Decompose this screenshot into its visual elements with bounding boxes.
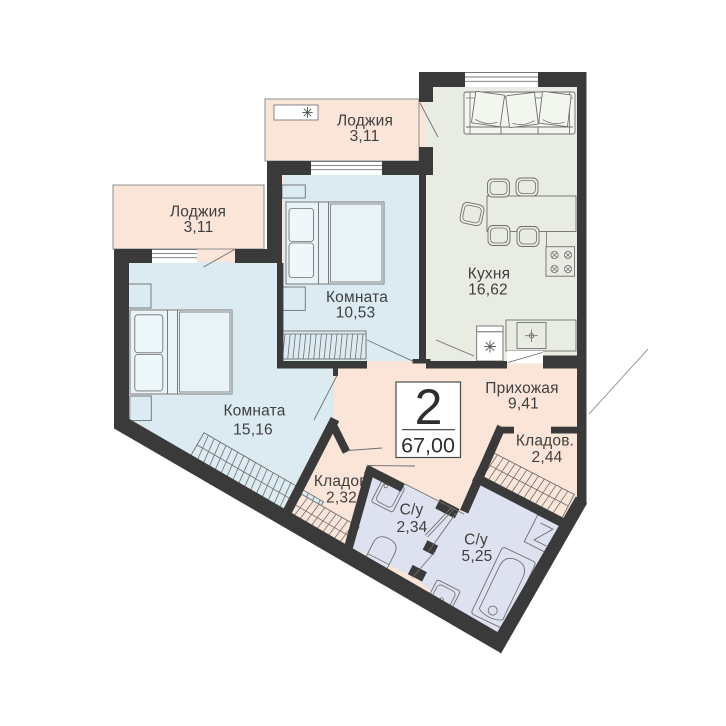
svg-text:10,53: 10,53 (336, 305, 376, 322)
svg-text:2,32: 2,32 (326, 490, 357, 507)
svg-text:С/у: С/у (400, 502, 424, 519)
svg-text:Комната: Комната (326, 289, 388, 306)
svg-text:Кладов.: Кладов. (314, 473, 372, 490)
svg-text:5,25: 5,25 (462, 548, 493, 565)
svg-text:С/у: С/у (464, 532, 488, 549)
svg-text:Кухня: Кухня (468, 266, 510, 283)
svg-text:Лоджия: Лоджия (170, 204, 226, 221)
svg-text:Кладов.: Кладов. (516, 433, 574, 450)
svg-text:2: 2 (415, 379, 443, 435)
svg-text:3,11: 3,11 (184, 219, 214, 236)
svg-text:16,62: 16,62 (468, 282, 508, 299)
svg-text:2,44: 2,44 (532, 449, 563, 466)
svg-text:3,11: 3,11 (350, 128, 380, 145)
svg-text:2,34: 2,34 (397, 519, 428, 536)
svg-text:Комната: Комната (223, 403, 285, 420)
svg-text:Прихожая: Прихожая (485, 380, 558, 397)
svg-text:67,00: 67,00 (401, 434, 455, 458)
svg-text:15,16: 15,16 (233, 422, 273, 439)
svg-text:9,41: 9,41 (508, 396, 539, 413)
svg-text:Лоджия: Лоджия (337, 113, 393, 130)
